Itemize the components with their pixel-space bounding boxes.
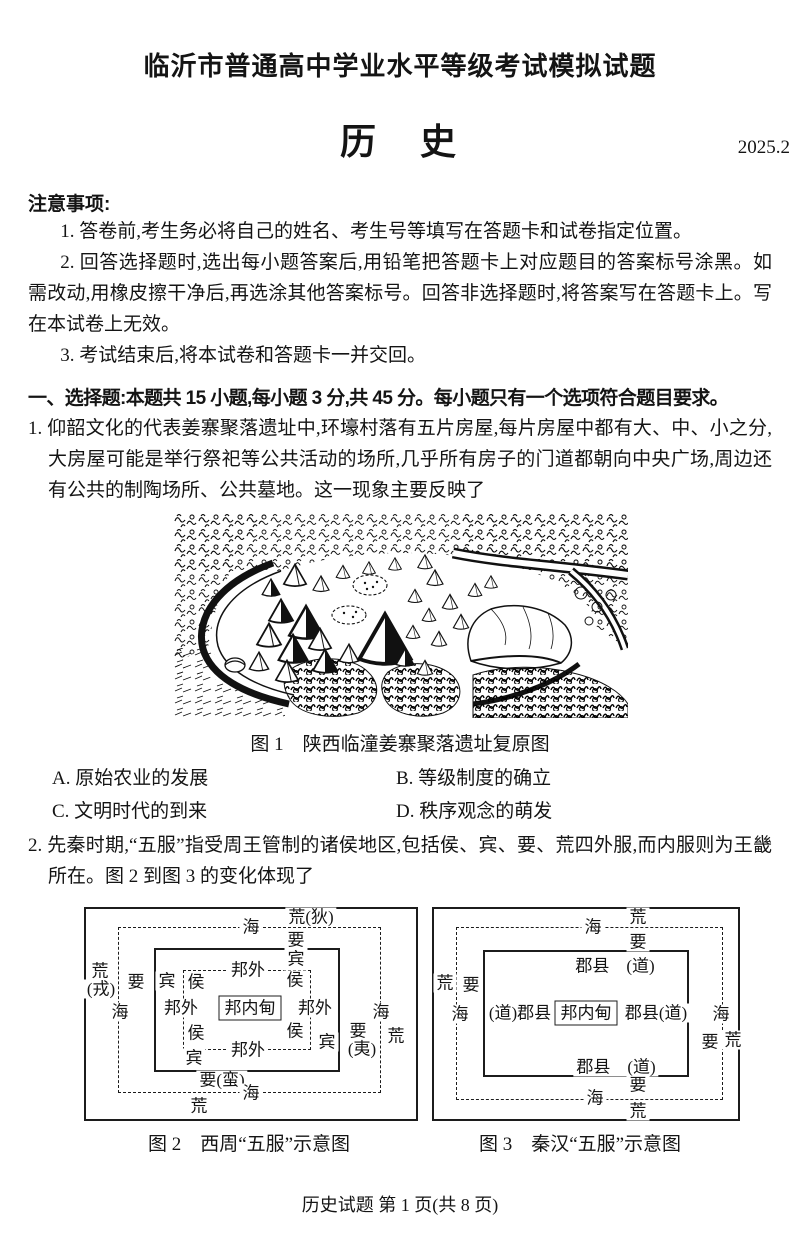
fig3-label-huang-top: 荒 (627, 908, 650, 927)
fig3-label-junxian-bottom: 郡县 (道) (573, 1058, 658, 1077)
fig3-label-junxian-left: (道)郡县 (486, 1004, 554, 1023)
fig3-label-yao-left: 要 (460, 976, 483, 995)
fig2-label-hou-bl: 侯 (185, 1024, 208, 1043)
fig2-label-hai-left: 海 (109, 1003, 132, 1022)
option-d: D. 秩序观念的萌发 (396, 795, 772, 828)
fig2-label-hai-bottom: 海 (240, 1084, 263, 1103)
section-1-heading: 一、选择题:本题共 15 小题,每小题 3 分,共 45 分。每小题只有一个选项… (28, 384, 772, 413)
fig3-label-yao-right: 要 (699, 1033, 722, 1052)
fig3-label-hai-top: 海 (582, 918, 605, 937)
page-footer: 历史试题 第 1 页(共 8 页) (0, 1191, 800, 1217)
fig2-label-yao-left: 要 (125, 973, 148, 992)
fig3-label-hai-left: 海 (449, 1005, 472, 1024)
question-1-text: 1. 仰韶文化的代表姜寨聚落遗址中,环壕村落有五片房屋,每片房屋中都有大、中、小… (28, 413, 772, 506)
notice-heading: 注意事项: (28, 189, 772, 216)
fig3-label-junxian-top: 郡县 (道) (572, 957, 657, 976)
question-1-options: A. 原始农业的发展 B. 等级制度的确立 C. 文明时代的到来 D. 秩序观念… (52, 762, 772, 828)
jiangzhai-settlement-illustration (173, 513, 628, 718)
notice-item-2: 2. 回答选择题时,选出每小题答案后,用铅笔把答题卡上对应题目的答案标号涂黑。如… (28, 247, 772, 340)
subject-title: 历 史 (28, 113, 772, 165)
option-c: C. 文明时代的到来 (52, 795, 396, 828)
fig2-center-box: 邦内甸 (219, 996, 282, 1021)
fig2-label-huang-bottom: 荒 (188, 1097, 211, 1116)
figure-1 (173, 513, 628, 724)
notice-item-3: 3. 考试结束后,将本试卷和答题卡一并交回。 (28, 340, 772, 371)
fig3-center-box: 邦内甸 (555, 1001, 618, 1026)
fig2-label-hou-tr: 侯 (284, 971, 307, 990)
fig3-label-hai-bottom: 海 (584, 1089, 607, 1108)
figures-2-3-row: 荒(狄) 海 要 宾 邦外 侯 侯 宾 要 荒 (戎) 海 邦外 邦内甸 邦外 … (84, 907, 772, 1121)
fig3-label-huang-right: 荒 (722, 1031, 745, 1050)
notice-item-1: 1. 答卷前,考生务必将自己的姓名、考生号等填写在答题卡和试卷指定位置。 (28, 216, 772, 247)
fig3-label-yao-top: 要 (627, 933, 650, 952)
fig2-label-bangwai-top: 邦外 (228, 961, 268, 980)
fig2-label-bin-right: 宾 (316, 1033, 339, 1052)
exam-page: 临沂市普通高中学业水平等级考试模拟试题 历 史 2025.2 注意事项: 1. … (0, 46, 800, 1156)
figure-3-caption: 图 3 秦汉“五服”示意图 (428, 1129, 732, 1156)
fig2-label-bin-top: 宾 (285, 950, 308, 969)
fig2-label-bangwai-right: 邦外 (295, 999, 335, 1018)
figure-2-caption: 图 2 西周“五服”示意图 (84, 1129, 414, 1156)
exam-title: 临沂市普通高中学业水平等级考试模拟试题 (28, 46, 772, 83)
figure-3-diagram: 荒 海 要 郡县 (道) 荒 要 海 (道)郡县 邦内甸 郡县(道) 海 要 荒… (432, 907, 740, 1121)
fig3-label-huang-bottom: 荒 (627, 1102, 650, 1121)
subject-row: 历 史 2025.2 (28, 113, 772, 159)
question-2-text: 2. 先秦时期,“五服”指受周王管制的诸侯地区,包括侯、宾、要、荒四外服,而内服… (28, 830, 772, 892)
fig2-label-yao-top: 要 (285, 931, 308, 950)
fig3-label-yao-bottom: 要 (627, 1076, 650, 1095)
option-a: A. 原始农业的发展 (52, 762, 396, 795)
option-b: B. 等级制度的确立 (396, 762, 772, 795)
fig2-label-huang-rong-2: (戎) (84, 980, 118, 999)
fig2-label-bin-left: 宾 (156, 972, 179, 991)
fig2-label-hou-tl: 侯 (185, 973, 208, 992)
fig2-label-hou-br: 侯 (284, 1022, 307, 1041)
fig2-label-huang-right: 荒 (385, 1027, 408, 1046)
figure-2-diagram: 荒(狄) 海 要 宾 邦外 侯 侯 宾 要 荒 (戎) 海 邦外 邦内甸 邦外 … (84, 907, 418, 1121)
fig2-label-hai-top: 海 (240, 918, 263, 937)
fig2-label-bangwai-left: 邦外 (161, 999, 201, 1018)
fig3-label-junxian-right: 郡县(道) (622, 1004, 690, 1023)
fig3-label-hai-right: 海 (710, 1005, 733, 1024)
fig2-label-huang-rong-1: 荒 (89, 962, 112, 981)
fig2-label-bangwai-bottom: 邦外 (228, 1041, 268, 1060)
fig2-label-bin-bottom: 宾 (183, 1049, 206, 1068)
fig2-label-hai-right: 海 (370, 1003, 393, 1022)
fig2-label-yao-yi-2: (夷) (345, 1040, 379, 1059)
figures-2-3-captions: 图 2 西周“五服”示意图 图 3 秦汉“五服”示意图 (84, 1129, 772, 1156)
fig2-label-huang-di: 荒(狄) (285, 908, 336, 927)
fig2-label-yao-yi-1: 要 (347, 1022, 370, 1041)
figure-1-caption: 图 1 陕西临潼姜寨聚落遗址复原图 (28, 733, 772, 756)
exam-date: 2025.2 (738, 137, 790, 159)
fig3-label-huang-left: 荒 (434, 974, 457, 993)
